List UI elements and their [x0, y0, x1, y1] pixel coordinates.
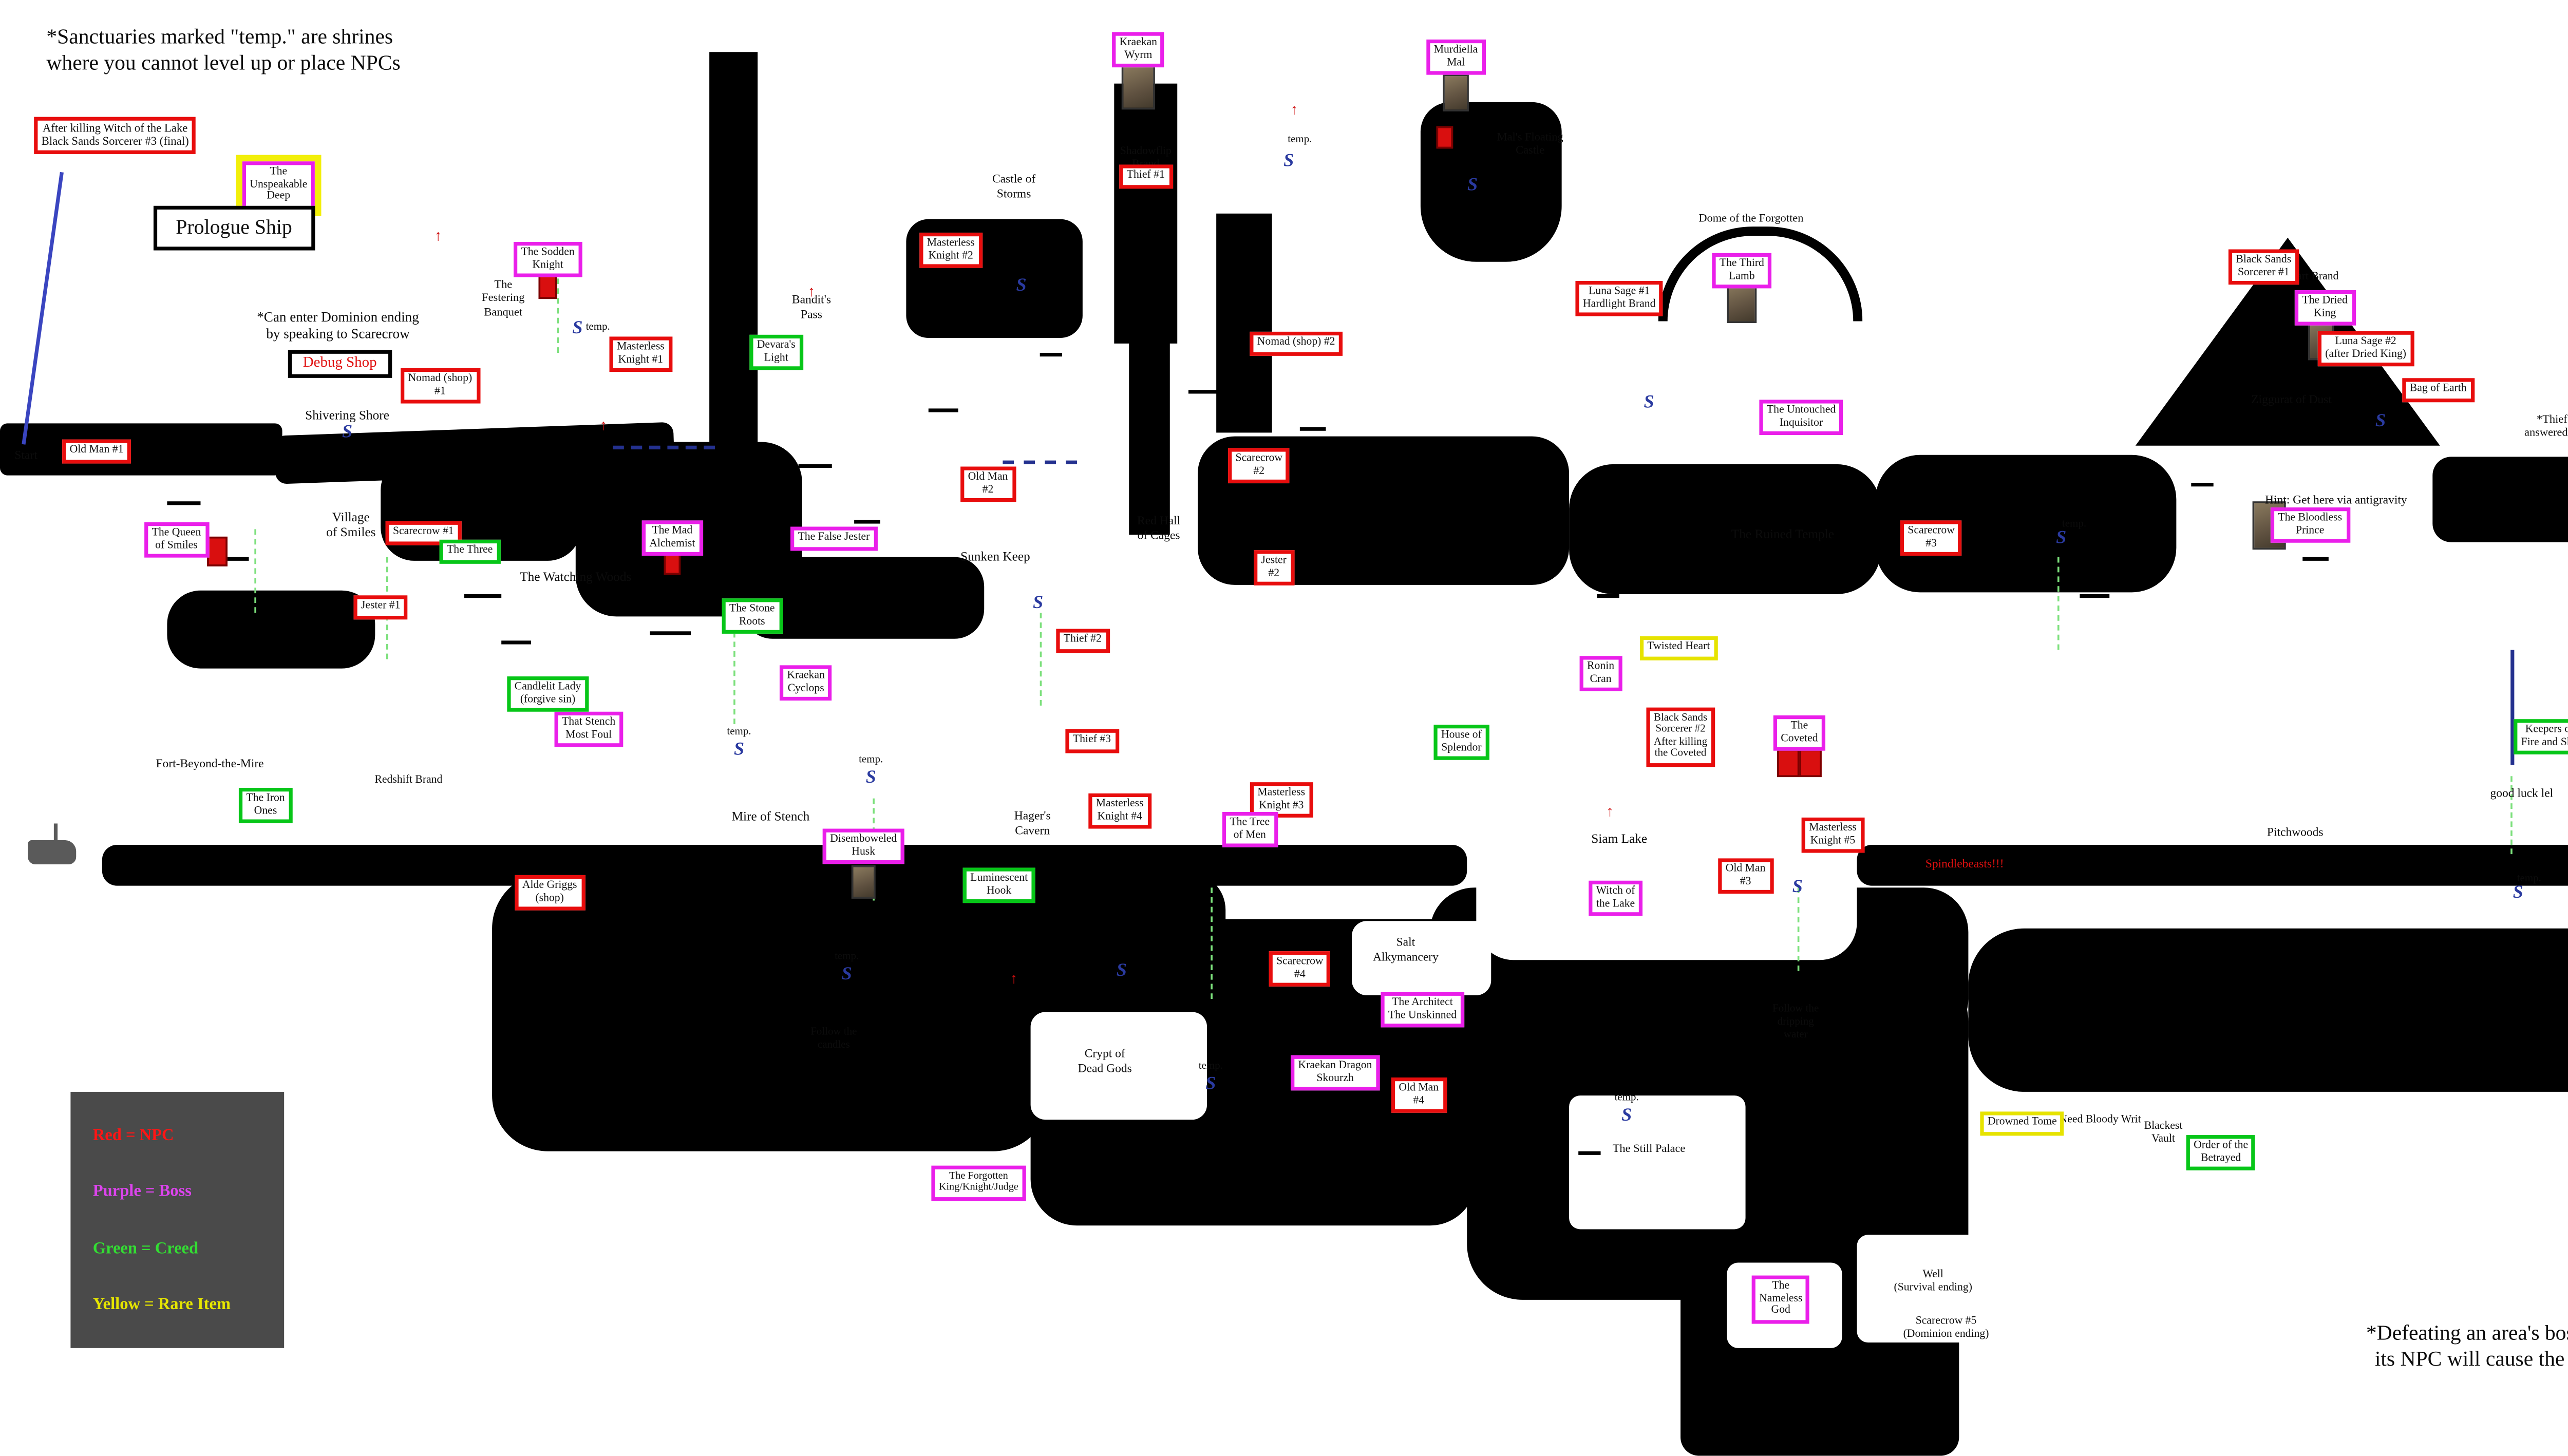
boss-portrait-icon — [852, 865, 876, 899]
boss-marker: The Nameless God — [1752, 1276, 1810, 1325]
green-route-line — [1798, 887, 1800, 971]
legend-item: Green = Creed — [93, 1239, 198, 1257]
green-route-line — [254, 529, 256, 613]
boss-marker: Kraekan Wyrm — [1112, 32, 1164, 68]
area-label: Ziggurat of Dust — [2251, 394, 2332, 408]
area-label: Shivering Shore — [305, 408, 389, 424]
area-label: temp. — [2062, 519, 2086, 532]
area-label: temp. — [835, 952, 859, 965]
area-label: temp. — [586, 323, 610, 335]
area-label: Blackest Vault — [2144, 1121, 2183, 1147]
boss-marker: The False Jester — [790, 527, 877, 551]
area-label: good luck lel — [2490, 788, 2553, 802]
red-up-arrow-icon: ↑ — [600, 417, 607, 434]
boss-marker: Murdiella Mal — [1426, 40, 1485, 75]
npc-marker: Masterless Knight #5 — [1802, 818, 1864, 854]
map-note: Hint: Get here via antigravity — [2265, 494, 2407, 508]
area-label: Bandit's Pass — [792, 294, 831, 322]
platform-line — [1188, 390, 1218, 393]
map-note: *Sanctuaries marked "temp." are shrines … — [46, 27, 400, 77]
npc-flag-icon — [207, 537, 228, 566]
green-route-line — [1040, 613, 1042, 706]
area-label: Follow the candles — [810, 1027, 857, 1052]
creed-marker: The Three — [440, 540, 500, 563]
area-label: temp. — [859, 755, 883, 768]
platform-line — [2191, 483, 2213, 486]
npc-flag-icon — [1799, 749, 1821, 777]
npc-marker: After killing Witch of the Lake Black Sa… — [34, 117, 196, 155]
platform-line — [873, 1003, 902, 1006]
platform-line — [501, 640, 531, 644]
platform-line — [1597, 594, 1619, 598]
map-room — [1569, 1095, 1745, 1229]
boss-marker: Ronin Cran — [1580, 656, 1622, 692]
creed-marker: Devara's Light — [749, 335, 803, 371]
area-label: Siam Lake — [1591, 831, 1647, 847]
npc-flag-icon — [1437, 126, 1453, 148]
boss-marker: The Untouched Inquisitor — [1759, 400, 1843, 436]
npc-marker: Masterless Knight #2 — [919, 233, 982, 269]
landmass-shape — [1569, 464, 1881, 594]
boss-marker: The Queen of Smiles — [144, 522, 209, 558]
platform-line — [929, 408, 958, 412]
creed-marker: Order of the Betrayed — [2186, 1135, 2256, 1171]
platform-line — [1225, 1040, 1255, 1044]
npc-marker: Jester #1 — [353, 595, 407, 619]
npc-marker: Thief #2 — [1056, 629, 1109, 652]
blue-route-line — [613, 446, 715, 449]
platform-line — [854, 520, 880, 523]
boss-marker: The Sodden Knight — [514, 242, 582, 278]
sanctuary-icon: S — [734, 740, 744, 761]
area-label: Redshift Brand — [374, 775, 442, 788]
platform-line — [2414, 966, 2440, 969]
ship-icon — [28, 840, 76, 864]
sanctuary-icon: S — [1792, 877, 1803, 898]
platform-line — [2302, 557, 2329, 561]
platform-line — [1040, 353, 1062, 356]
area-label: temp. — [1615, 1093, 1639, 1106]
npc-flag-icon — [1777, 749, 1799, 777]
legend: Red = NPCPurple = BossGreen = CreedYello… — [70, 1092, 284, 1348]
platform-line — [1300, 427, 1326, 431]
boss-marker: The Forgotten King/Knight/Judge — [931, 1166, 1026, 1200]
npc-marker: Thief #3 — [1065, 729, 1118, 753]
boss-marker: The Third Lamb — [1712, 253, 1771, 289]
salt-and-sanctuary-map: *Sanctuaries marked "temp." are shrines … — [0, 0, 2568, 1456]
sanctuary-icon: S — [1644, 393, 1654, 413]
legend-item: Red = NPC — [93, 1125, 174, 1144]
area-label: The Watching Woods — [520, 570, 631, 585]
map-note: *Defeating an area's boss before talking… — [2366, 1323, 2568, 1373]
platform-line — [464, 594, 501, 598]
legend-item: Purple = Boss — [93, 1181, 192, 1199]
green-route-line — [2057, 557, 2060, 650]
map-note: *Thief only appears here if you answered… — [2524, 413, 2568, 441]
npc-marker: Black Sands Sorcerer #1 — [2229, 249, 2299, 285]
npc-marker: Nomad (shop) #2 — [1250, 332, 1343, 355]
rare-item-marker: Twisted Heart — [1640, 636, 1717, 660]
platform-line — [2080, 594, 2109, 598]
boss-portrait-icon — [1443, 74, 1469, 111]
boss-marker: The Unspeakable Deep — [242, 161, 315, 210]
platform-line — [1931, 557, 1957, 561]
npc-marker: Luna Sage #2 (after Dried King) — [2318, 331, 2414, 367]
area-label: temp. — [1288, 135, 1312, 147]
red-up-arrow-icon: ↑ — [435, 228, 442, 244]
sanctuary-icon: S — [866, 768, 876, 788]
red-up-arrow-icon: ↑ — [1606, 803, 1613, 820]
sanctuary-icon: S — [572, 318, 582, 339]
area-label: Spindlebeasts!!! — [1925, 858, 2004, 873]
landmass-shape — [1216, 214, 1272, 433]
area-label: temp. — [727, 727, 751, 740]
landmass-shape — [167, 591, 375, 669]
npc-marker: Old Man #4 — [1391, 1077, 1446, 1113]
platform-line — [1355, 483, 1389, 486]
area-label: Fort-Beyond-the-Mire — [156, 758, 263, 772]
boss-marker: The Architect The Unskinned — [1381, 992, 1464, 1028]
area-label: Follow the dripping water — [1772, 1004, 1819, 1042]
area-label: Pitchwoods — [2267, 827, 2324, 841]
landmass-shape — [709, 52, 758, 445]
boss-marker: The Tree of Men — [1222, 812, 1277, 848]
blue-route-line — [1003, 461, 1077, 464]
rare-item-marker: Drowned Tome — [1980, 1111, 2064, 1135]
sanctuary-icon: S — [1467, 176, 1478, 196]
map-note: *Can enter Dominion ending by speaking t… — [257, 310, 419, 343]
creed-marker: The Iron Ones — [239, 788, 292, 824]
boss-marker: The Coveted — [1773, 715, 1825, 751]
area-label: Start — [14, 450, 37, 464]
npc-marker: Scarecrow #4 — [1269, 951, 1331, 987]
platform-line — [1337, 1003, 1359, 1006]
platform-line — [1485, 1040, 1512, 1044]
npc-marker: Scarecrow #2 — [1228, 448, 1290, 484]
area-label: Scarecrow #5 (Dominion ending) — [1903, 1316, 1989, 1342]
area-label: Salt Alkymancery — [1373, 936, 1439, 965]
debug-shop-marker: Debug Shop — [288, 350, 392, 378]
sanctuary-icon: S — [1283, 152, 1294, 172]
platform-line — [1857, 1040, 1887, 1044]
platform-line — [1578, 1151, 1600, 1155]
npc-marker: Masterless Knight #4 — [1088, 793, 1151, 829]
landmass-shape — [0, 423, 282, 475]
npc-marker: Jester #2 — [1254, 550, 1294, 586]
creed-marker: Candlelit Lady (forgive sin) — [507, 676, 588, 712]
sanctuary-icon: S — [842, 965, 852, 985]
landmass-shape — [1968, 929, 2568, 1092]
npc-marker: Old Man #2 — [960, 467, 1015, 503]
landmass-shape — [1129, 241, 1170, 535]
npc-marker: Alde Griggs (shop) — [515, 875, 584, 911]
boss-marker: The Mad Alchemist — [642, 520, 703, 556]
boss-marker: Kraekan Cyclops — [780, 665, 832, 701]
npc-marker: Masterless Knight #1 — [609, 336, 672, 372]
area-label: Mire of Stench — [732, 809, 810, 825]
platform-line — [984, 1040, 1010, 1044]
boss-marker: Witch of the Lake — [1589, 881, 1642, 917]
sanctuary-icon: S — [1205, 1074, 1216, 1095]
red-up-arrow-icon: ↑ — [1291, 101, 1298, 118]
sanctuary-icon: S — [1621, 1106, 1632, 1126]
boss-marker: Kraekan Dragon Skourzh — [1291, 1055, 1380, 1091]
area-label: Castle of Storms — [992, 173, 1035, 201]
platform-line — [1523, 557, 1553, 561]
npc-marker: Nomad (shop) #1 — [401, 368, 480, 404]
npc-marker: Scarecrow #3 — [1900, 520, 1962, 556]
area-label: Sunken Keep — [960, 550, 1030, 565]
boss-marker: The Dried King — [2295, 290, 2355, 326]
platform-line — [167, 501, 200, 505]
boss-marker: That Stench Most Foul — [555, 712, 623, 748]
npc-marker: Thief #1 — [1119, 164, 1172, 188]
area-label: Crypt of Dead Gods — [1078, 1048, 1132, 1076]
area-label: Dome of the Forgotten — [1698, 212, 1803, 225]
note-connector-line — [22, 172, 63, 445]
area-label: temp. — [2517, 874, 2541, 886]
platform-line — [799, 464, 832, 468]
area-label: Well (Survival ending) — [1894, 1270, 1972, 1296]
area-label: Hager's Cavern — [1014, 810, 1051, 839]
green-route-line — [1211, 887, 1213, 999]
area-label: Village of Smiles — [326, 510, 375, 541]
npc-marker: Black Sands Sorcerer #2 After killing th… — [1646, 708, 1714, 767]
red-up-arrow-icon: ↑ — [1010, 970, 1017, 987]
creed-marker: House of Splendor — [1433, 725, 1489, 761]
area-label: temp. — [1199, 1062, 1223, 1074]
sanctuary-icon: S — [1033, 593, 1043, 614]
npc-marker: Old Man #1 — [62, 440, 131, 463]
legend-item: Yellow = Rare Item — [93, 1294, 231, 1313]
npc-marker: Old Man #3 — [1718, 858, 1773, 894]
landmass-shape — [2432, 457, 2568, 542]
boss-marker: Disemboweled Husk — [823, 829, 904, 865]
npc-marker: Luna Sage #1 Hardlight Brand — [1575, 281, 1663, 317]
sanctuary-icon: S — [1117, 961, 1127, 981]
creed-marker: The Stone Roots — [722, 598, 783, 634]
area-label: The Festering Banquet — [482, 278, 524, 319]
sanctuary-icon: S — [2375, 411, 2386, 432]
sanctuary-icon: S — [342, 423, 352, 443]
platform-line — [650, 631, 691, 635]
creed-marker: Luminescent Hook — [963, 867, 1035, 903]
creed-marker: Keepers of Fire and Sky — [2514, 719, 2568, 755]
area-label: Red Hall of Cages — [1137, 515, 1180, 543]
boss-portrait-icon — [1122, 65, 1155, 110]
prologue-ship-label: Prologue Ship — [154, 206, 314, 251]
green-route-line — [557, 278, 559, 353]
npc-marker: Bag of Earth — [2402, 378, 2474, 402]
area-label: Mal's Floating Castle — [1497, 131, 1563, 159]
area-label: Need Bloody Writ — [2060, 1115, 2141, 1128]
area-label: The Still Palace — [1613, 1143, 1686, 1156]
sanctuary-icon: S — [1016, 276, 1026, 296]
platform-line — [1708, 576, 1742, 579]
area-label: The Ruined Temple — [1731, 527, 1834, 542]
boss-marker: The Bloodless Prince — [2271, 507, 2350, 543]
